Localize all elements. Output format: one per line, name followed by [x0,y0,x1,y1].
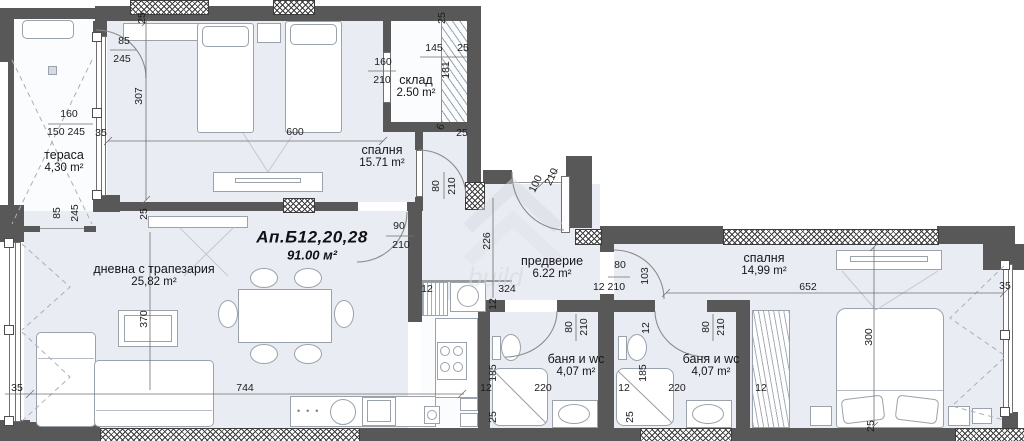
dimension-label: 210 [447,177,458,195]
dimension-label: 85 [118,36,130,47]
dimension-label: 6 [435,122,447,131]
room-area: 25,82 m² [93,276,214,290]
apartment-title: Ап.Б12,20,28 91.00 м² [256,228,368,263]
room-area: 4,30 m² [44,162,84,176]
dimension-label: 145 [425,43,443,54]
dimension-label: 12 [641,322,652,334]
dimension-label: 226 [482,232,493,250]
room-label-entry-hall: предверие6.22 m² [521,254,583,282]
room-name: дневна с трапезария [93,262,214,276]
room-area: 14,99 m² [741,265,786,279]
room-name: спалня [359,143,404,157]
room-label-bathroom-2: баня и wc4,07 m² [683,352,740,380]
room-name: баня и wc [548,352,605,366]
room-name: склад [397,73,436,87]
dimension-label: 245 [70,204,81,222]
dimension-label: 35 [999,281,1011,292]
room-name: баня и wc [683,352,740,366]
dimension-label: 80 [614,260,626,271]
dimension-label: 12 [421,284,433,295]
dimension-label: 25 [866,420,877,432]
dimension-label: 103 [640,267,651,285]
dimension-label: 220 [534,383,552,394]
dimension-label: 210 [579,318,590,336]
dimension-label: 35 [11,383,23,394]
dimension-label: 300 [864,328,875,346]
dimension-label: 12 [755,383,767,394]
apartment-number: Ап.Б12,20,28 [256,228,368,248]
dimension-label: 370 [139,310,150,328]
dimension-label: 245 [113,54,131,65]
dimension-label: 220 [668,383,686,394]
dimension-label: 185 [488,364,499,382]
dimension-label: 25 [456,128,468,139]
room-area: 2.50 m² [397,87,436,101]
dimension-label: 324 [498,284,516,295]
dimension-label: 210 [716,318,727,336]
dimension-label: 25 [457,43,469,54]
dimension-label: 160 [60,109,78,120]
dimension-label: 35 [95,128,107,139]
dimension-label: 80 [431,180,442,192]
room-area: 6.22 m² [521,268,583,282]
room-label-bathroom-1: баня и wc4,07 m² [548,352,605,380]
dimension-label: 12 [618,383,630,394]
dimension-label: 150 245 [47,127,85,138]
dimension-label: 25 [137,12,148,24]
dimension-label: 185 [638,364,649,382]
room-area: 4,07 m² [548,366,605,380]
dimension-label: 25 [488,411,499,423]
dimension-label: 25 [437,12,448,24]
dimension-label: 100 [528,174,545,194]
room-label-terrace: тераса4,30 m² [44,148,84,176]
room-label-living-dining: дневна с трапезария25,82 m² [93,262,214,290]
labels-layer: тераса4,30 m²спалня15.71 m²склад2.50 m²д… [0,0,1024,441]
room-label-storage: склад2.50 m² [397,73,436,101]
dimension-label: 90 [393,221,405,232]
floor-plan: ••• build [0,0,1024,441]
apartment-area: 91.00 м² [256,248,368,263]
dimension-label: 25 [625,411,636,423]
room-name: тераса [44,148,84,162]
dimension-label: 210 [544,167,561,187]
room-area: 4,07 m² [683,366,740,380]
room-label-bedroom-1: спалня15.71 m² [359,143,404,171]
room-area: 15.71 m² [359,157,404,171]
dimension-label: 80 [701,321,712,333]
dimension-label: 25 [139,208,150,220]
dimension-label: 12 210 [593,282,625,293]
room-name: предверие [521,254,583,268]
dimension-label: 85 [52,207,63,219]
room-name: спалня [741,251,786,265]
dimension-label: 210 [373,75,391,86]
dimension-label: 12 [488,298,499,310]
dimension-label: 80 [564,321,575,333]
dimension-label: 744 [236,383,254,394]
dimension-label: 210 [392,240,410,251]
dimension-label: 307 [134,87,145,105]
dimension-label: 600 [286,127,304,138]
dimension-label: 652 [799,282,817,293]
dimension-label: 160 [374,57,392,68]
dimension-label: 12 [480,383,492,394]
dimension-label: 181 [441,61,452,79]
room-label-bedroom-2: спалня14,99 m² [741,251,786,279]
